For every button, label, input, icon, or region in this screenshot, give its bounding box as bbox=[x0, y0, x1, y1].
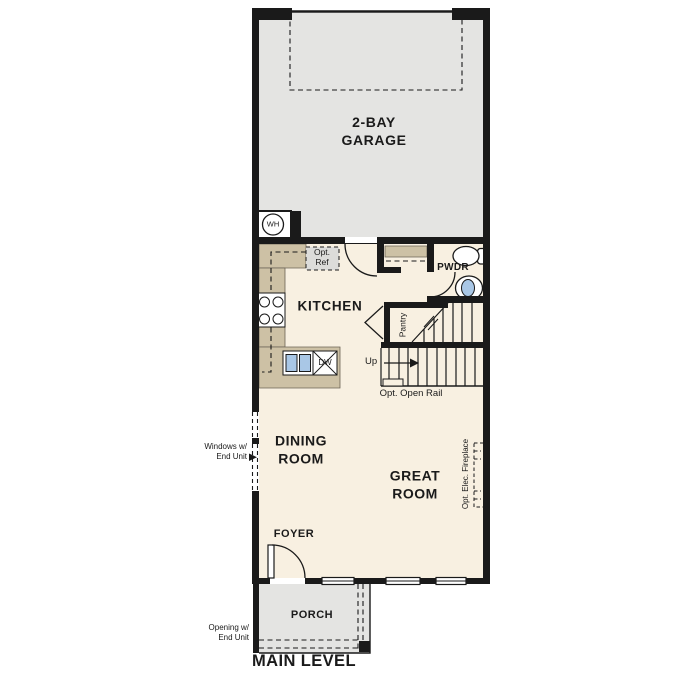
foyer-label: FOYER bbox=[274, 528, 314, 542]
porch-label: PORCH bbox=[291, 609, 333, 623]
room-fills bbox=[259, 13, 483, 653]
end-unit-windows bbox=[249, 412, 259, 491]
floor-plan: 2-BAY GARAGE WH Opt. Ref KITCHEN PWDR Pa… bbox=[0, 0, 687, 687]
opt-ref-label: Opt. Ref bbox=[314, 248, 330, 268]
open-rail-label: Opt. Open Rail bbox=[380, 388, 443, 400]
water-heater-label: WH bbox=[267, 219, 280, 228]
closet-shelf bbox=[385, 246, 427, 257]
fireplace-label: Opt. Elec. Fireplace bbox=[461, 439, 471, 509]
windows-end-unit-note: Windows w/ End Unit bbox=[187, 442, 247, 461]
floor-plan-graphics bbox=[0, 0, 687, 687]
plan-title: MAIN LEVEL bbox=[252, 651, 356, 672]
counter-top bbox=[259, 244, 306, 268]
opening-end-unit-note: Opening w/ End Unit bbox=[187, 623, 249, 642]
cooktop-icon bbox=[257, 293, 285, 327]
dining-label: DINING ROOM bbox=[275, 433, 327, 468]
pantry-label: Pantry bbox=[397, 313, 408, 338]
entry-door-leaf bbox=[268, 545, 274, 578]
front-windows bbox=[322, 578, 466, 585]
dishwasher-label: DW bbox=[318, 358, 331, 368]
stair-step-box bbox=[383, 379, 403, 386]
great-room-label: GREAT ROOM bbox=[390, 468, 440, 503]
garage-label: 2-BAY GARAGE bbox=[341, 113, 406, 149]
kitchen-label: KITCHEN bbox=[298, 299, 363, 316]
sink-icon bbox=[283, 351, 313, 375]
up-label: Up bbox=[365, 356, 377, 368]
porch-column bbox=[359, 641, 370, 652]
powder-label: PWDR bbox=[437, 262, 469, 275]
